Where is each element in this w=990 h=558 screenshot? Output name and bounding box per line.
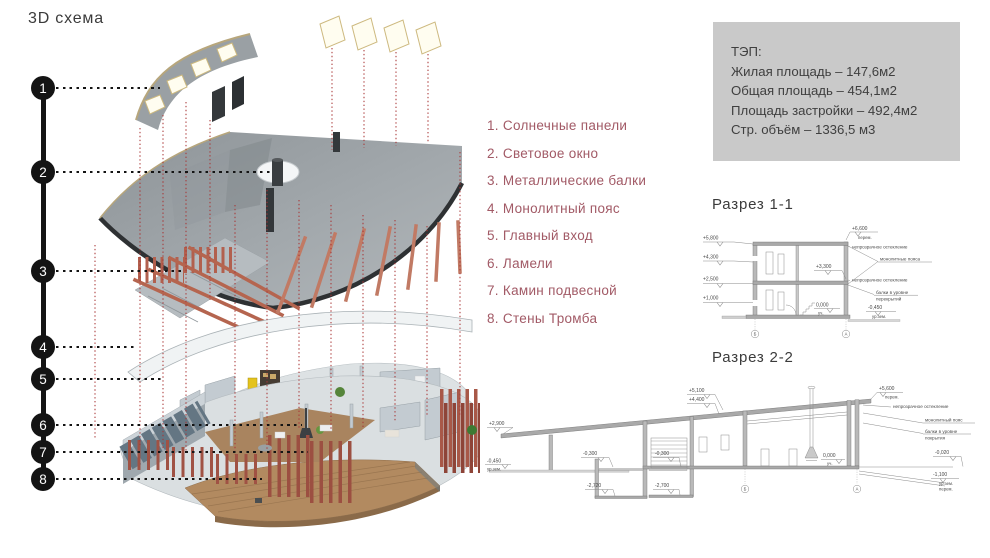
poster-canvas: 3D схема <box>0 0 990 558</box>
legend-item: 1. Солнечные панели <box>487 112 707 140</box>
section1-title: Разрез 1-1 <box>712 196 794 213</box>
svg-text:ур.зем.: ур.зем. <box>487 467 501 472</box>
chimney-boxes <box>212 76 244 122</box>
svg-text:-2,720: -2,720 <box>587 483 601 489</box>
section2-marks: +2,900 -0,450 ур.зем. -0,300 -0,300 -2,7… <box>485 386 975 496</box>
svg-text:перем.: перем. <box>858 235 872 240</box>
leader-6 <box>56 424 302 427</box>
svg-text:уч.: уч. <box>827 461 833 466</box>
plant <box>335 387 345 397</box>
solar-panels-floating <box>320 16 441 54</box>
svg-text:А: А <box>856 487 859 492</box>
section1-axes: Б А <box>751 319 850 338</box>
callout-1: 1 <box>31 76 55 100</box>
tep-line: Общая площадь – 454,1м2 <box>731 81 960 101</box>
leader-1 <box>56 87 160 90</box>
svg-text:-0,300: -0,300 <box>655 451 669 457</box>
svg-text:уч.: уч. <box>818 311 824 316</box>
svg-text:балки в уровне: балки в уровне <box>876 290 909 295</box>
legend-item: 3. Металлические балки <box>487 167 707 195</box>
svg-text:Б: Б <box>754 332 757 337</box>
tep-line: Площадь застройки – 492,4м2 <box>731 101 960 121</box>
svg-text:балки в уровне: балки в уровне <box>925 429 958 434</box>
svg-text:+2,900: +2,900 <box>489 421 505 427</box>
svg-text:А: А <box>845 332 848 337</box>
exploded-3d-model <box>20 0 480 558</box>
legend-item: 5. Главный вход <box>487 222 707 250</box>
svg-text:непрозрачное остекление: непрозрачное остекление <box>852 245 908 250</box>
leader-8 <box>56 478 262 481</box>
tep-line: Жилая площадь – 147,6м2 <box>731 62 960 82</box>
svg-text:+5,100: +5,100 <box>689 388 705 394</box>
tep-line: Стр. объём – 1336,5 м3 <box>731 120 960 140</box>
svg-text:-2,700: -2,700 <box>655 483 669 489</box>
svg-text:+4,400: +4,400 <box>689 397 705 403</box>
stairs <box>800 303 815 315</box>
svg-text:непрозрачное остекление: непрозрачное остекление <box>852 278 908 283</box>
svg-text:Б: Б <box>744 487 747 492</box>
svg-text:монолитные пояса: монолитные пояса <box>880 257 921 262</box>
callout-2: 2 <box>31 160 55 184</box>
section2-building <box>489 386 953 498</box>
legend-item: 8. Стены Тромба <box>487 305 707 333</box>
fireplace-chimney <box>805 386 818 460</box>
chimney-cylinder <box>272 160 283 186</box>
legend: 1. Солнечные панели 2. Световое окно 3. … <box>487 112 707 332</box>
svg-text:непрозрачное остекление: непрозрачное остекление <box>893 404 949 409</box>
svg-text:-1,100: -1,100 <box>933 472 947 478</box>
section-2-2-drawing: +2,900 -0,450 ур.зем. -0,300 -0,300 -2,7… <box>483 383 988 505</box>
section2-axes: Б А <box>741 467 861 493</box>
plant <box>467 425 477 435</box>
callout-3: 3 <box>31 259 55 283</box>
svg-text:ур.зем.: ур.зем. <box>872 314 886 319</box>
legend-item: 6. Ламели <box>487 250 707 278</box>
legend-item: 2. Световое окно <box>487 140 707 168</box>
tep-box: ТЭП: Жилая площадь – 147,6м2 Общая площа… <box>713 22 960 161</box>
section2-title: Разрез 2-2 <box>712 349 794 366</box>
svg-text:-0,020: -0,020 <box>935 450 949 456</box>
section-1-1-drawing: +5,800 +4,300 +2,500 +1,000 +6,600 перем… <box>700 222 985 346</box>
svg-text:+5,600: +5,600 <box>879 386 895 392</box>
legend-item: 7. Камин подвесной <box>487 277 707 305</box>
svg-text:-0,300: -0,300 <box>583 451 597 457</box>
callout-5: 5 <box>31 367 55 391</box>
callout-6: 6 <box>31 413 55 437</box>
leader-7 <box>56 451 308 454</box>
svg-text:0,000: 0,000 <box>823 453 836 459</box>
tep-heading: ТЭП: <box>731 42 960 62</box>
svg-text:покрытия: покрытия <box>925 436 946 441</box>
svg-text:перекрытий: перекрытий <box>876 296 902 302</box>
svg-text:монолитный пояс: монолитный пояс <box>925 417 963 423</box>
svg-text:+6,600: +6,600 <box>852 226 868 232</box>
leader-4 <box>56 346 135 349</box>
legend-item: 4. Монолитный пояс <box>487 195 707 223</box>
svg-text:-0,450: -0,450 <box>868 305 882 311</box>
svg-text:-0,450: -0,450 <box>487 459 501 465</box>
leader-5 <box>56 378 162 381</box>
svg-text:0,000: 0,000 <box>816 303 829 309</box>
roof-strip <box>136 34 258 130</box>
section1-marks: +5,800 +4,300 +2,500 +1,000 +6,600 перем… <box>703 226 932 319</box>
leader-2 <box>56 171 273 174</box>
callout-4: 4 <box>31 335 55 359</box>
svg-text:+3,300: +3,300 <box>816 264 832 270</box>
leader-3 <box>56 270 185 273</box>
svg-text:ур.зем.: ур.зем. <box>939 481 953 486</box>
svg-text:перем.: перем. <box>939 487 953 492</box>
callout-7: 7 <box>31 440 55 464</box>
door-swing <box>786 305 796 315</box>
callout-8: 8 <box>31 467 55 491</box>
svg-text:перем.: перем. <box>885 395 899 400</box>
